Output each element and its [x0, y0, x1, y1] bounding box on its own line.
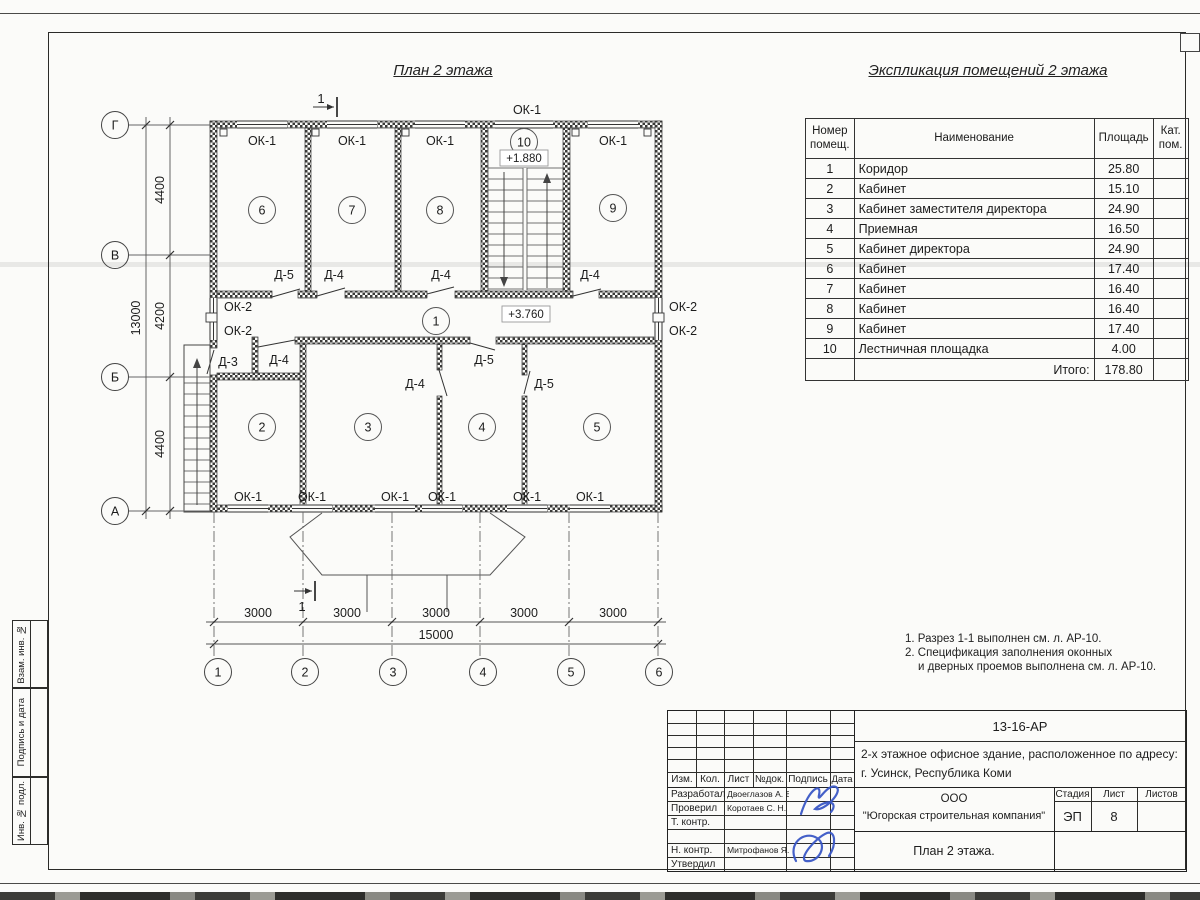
room-cat-cell — [1153, 339, 1188, 359]
table-total-row: Итого:178.80 — [806, 359, 1189, 381]
scan-edge-bottom — [0, 883, 1200, 884]
strip-cell: Подпись и дата — [12, 688, 48, 777]
table-row: 7Кабинет16.40 — [806, 279, 1189, 299]
room-cat-cell — [1153, 259, 1188, 279]
room-num-cell: 6 — [806, 259, 855, 279]
table-row: 8Кабинет16.40 — [806, 299, 1189, 319]
room-cat-cell — [1153, 239, 1188, 259]
room-area-cell: 4.00 — [1094, 339, 1153, 359]
room-area-cell: 17.40 — [1094, 319, 1153, 339]
table-row: 5Кабинет директора24.90 — [806, 239, 1189, 259]
table-row: 6Кабинет17.40 — [806, 259, 1189, 279]
room-name-cell: Приемная — [854, 219, 1094, 239]
table-row: 4Приемная16.50 — [806, 219, 1189, 239]
room-num-cell: 8 — [806, 299, 855, 319]
room-name-cell: Лестничная площадка — [854, 339, 1094, 359]
note-line: 1. Разрез 1-1 выполнен см. л. АР-10. — [905, 632, 1156, 646]
note-line: и дверных проемов выполнена см. л. АР-10… — [905, 660, 1156, 674]
table-row: 10Лестничная площадка4.00 — [806, 339, 1189, 359]
col-header-cat: Кат. пом. — [1153, 119, 1188, 159]
note-line: 2. Спецификация заполнения оконных — [905, 646, 1156, 660]
notes: 1. Разрез 1-1 выполнен см. л. АР-10. 2. … — [905, 632, 1156, 674]
room-name-cell: Кабинет директора — [854, 239, 1094, 259]
room-cat-cell — [1153, 299, 1188, 319]
room-num-cell: 3 — [806, 199, 855, 219]
room-name-cell: Кабинет — [854, 299, 1094, 319]
table-row: 3Кабинет заместителя директора24.90 — [806, 199, 1189, 219]
strip-label-vzam: Взам. инв. № — [16, 624, 27, 684]
room-area-cell: 16.40 — [1094, 279, 1153, 299]
title-block: Изм. Кол. Лист №док. Подпись Дата Разраб… — [667, 710, 1187, 872]
total-value: 178.80 — [1094, 359, 1153, 381]
scan-dark-strip — [0, 892, 1200, 900]
room-num-cell: 7 — [806, 279, 855, 299]
room-num-cell: 5 — [806, 239, 855, 259]
room-cat-cell — [1153, 159, 1188, 179]
strip-label-podpis: Подпись и дата — [16, 698, 27, 766]
room-name-cell: Коридор — [854, 159, 1094, 179]
room-name-cell: Кабинет заместителя директора — [854, 199, 1094, 219]
col-header-name: Наименование — [854, 119, 1094, 159]
signatures — [668, 711, 1186, 871]
total-label: Итого: — [854, 359, 1094, 381]
scanned-drawing-sheet: План 2 этажа Экспликация помещений 2 эта… — [0, 0, 1200, 900]
table-row: 9Кабинет17.40 — [806, 319, 1189, 339]
room-cat-cell — [1153, 279, 1188, 299]
room-area-cell: 17.40 — [1094, 259, 1153, 279]
room-area-cell: 24.90 — [1094, 199, 1153, 219]
strip-label-inv: Инв. № подл. — [16, 781, 27, 841]
side-attribute-strip: Взам. инв. № Подпись и дата Инв. № подл. — [12, 620, 48, 845]
plan-title: План 2 этажа — [393, 62, 492, 79]
explication-table: Номер помещ. Наименование Площадь Кат. п… — [805, 118, 1189, 381]
room-name-cell: Кабинет — [854, 319, 1094, 339]
room-area-cell: 16.40 — [1094, 299, 1153, 319]
room-num-cell: 1 — [806, 159, 855, 179]
signature-stroke — [793, 833, 834, 862]
table-row: 1Коридор25.80 — [806, 159, 1189, 179]
strip-cell: Взам. инв. № — [12, 620, 48, 688]
room-area-cell: 24.90 — [1094, 239, 1153, 259]
room-area-cell: 16.50 — [1094, 219, 1153, 239]
room-cat-cell — [1153, 319, 1188, 339]
table-row: 2Кабинет15.10 — [806, 179, 1189, 199]
room-cat-cell — [1153, 199, 1188, 219]
room-name-cell: Кабинет — [854, 259, 1094, 279]
room-num-cell: 10 — [806, 339, 855, 359]
room-num-cell: 9 — [806, 319, 855, 339]
strip-cell: Инв. № подл. — [12, 777, 48, 845]
col-header-area: Площадь — [1094, 119, 1153, 159]
scan-edge-top — [0, 13, 1200, 14]
signature-stroke — [801, 787, 838, 814]
room-name-cell: Кабинет — [854, 279, 1094, 299]
frame-corner-box — [1180, 33, 1200, 52]
room-area-cell: 15.10 — [1094, 179, 1153, 199]
room-name-cell: Кабинет — [854, 179, 1094, 199]
room-num-cell: 2 — [806, 179, 855, 199]
table-title: Экспликация помещений 2 этажа — [868, 62, 1107, 79]
room-area-cell: 25.80 — [1094, 159, 1153, 179]
room-num-cell: 4 — [806, 219, 855, 239]
room-cat-cell — [1153, 219, 1188, 239]
room-cat-cell — [1153, 179, 1188, 199]
col-header-num: Номер помещ. — [806, 119, 855, 159]
